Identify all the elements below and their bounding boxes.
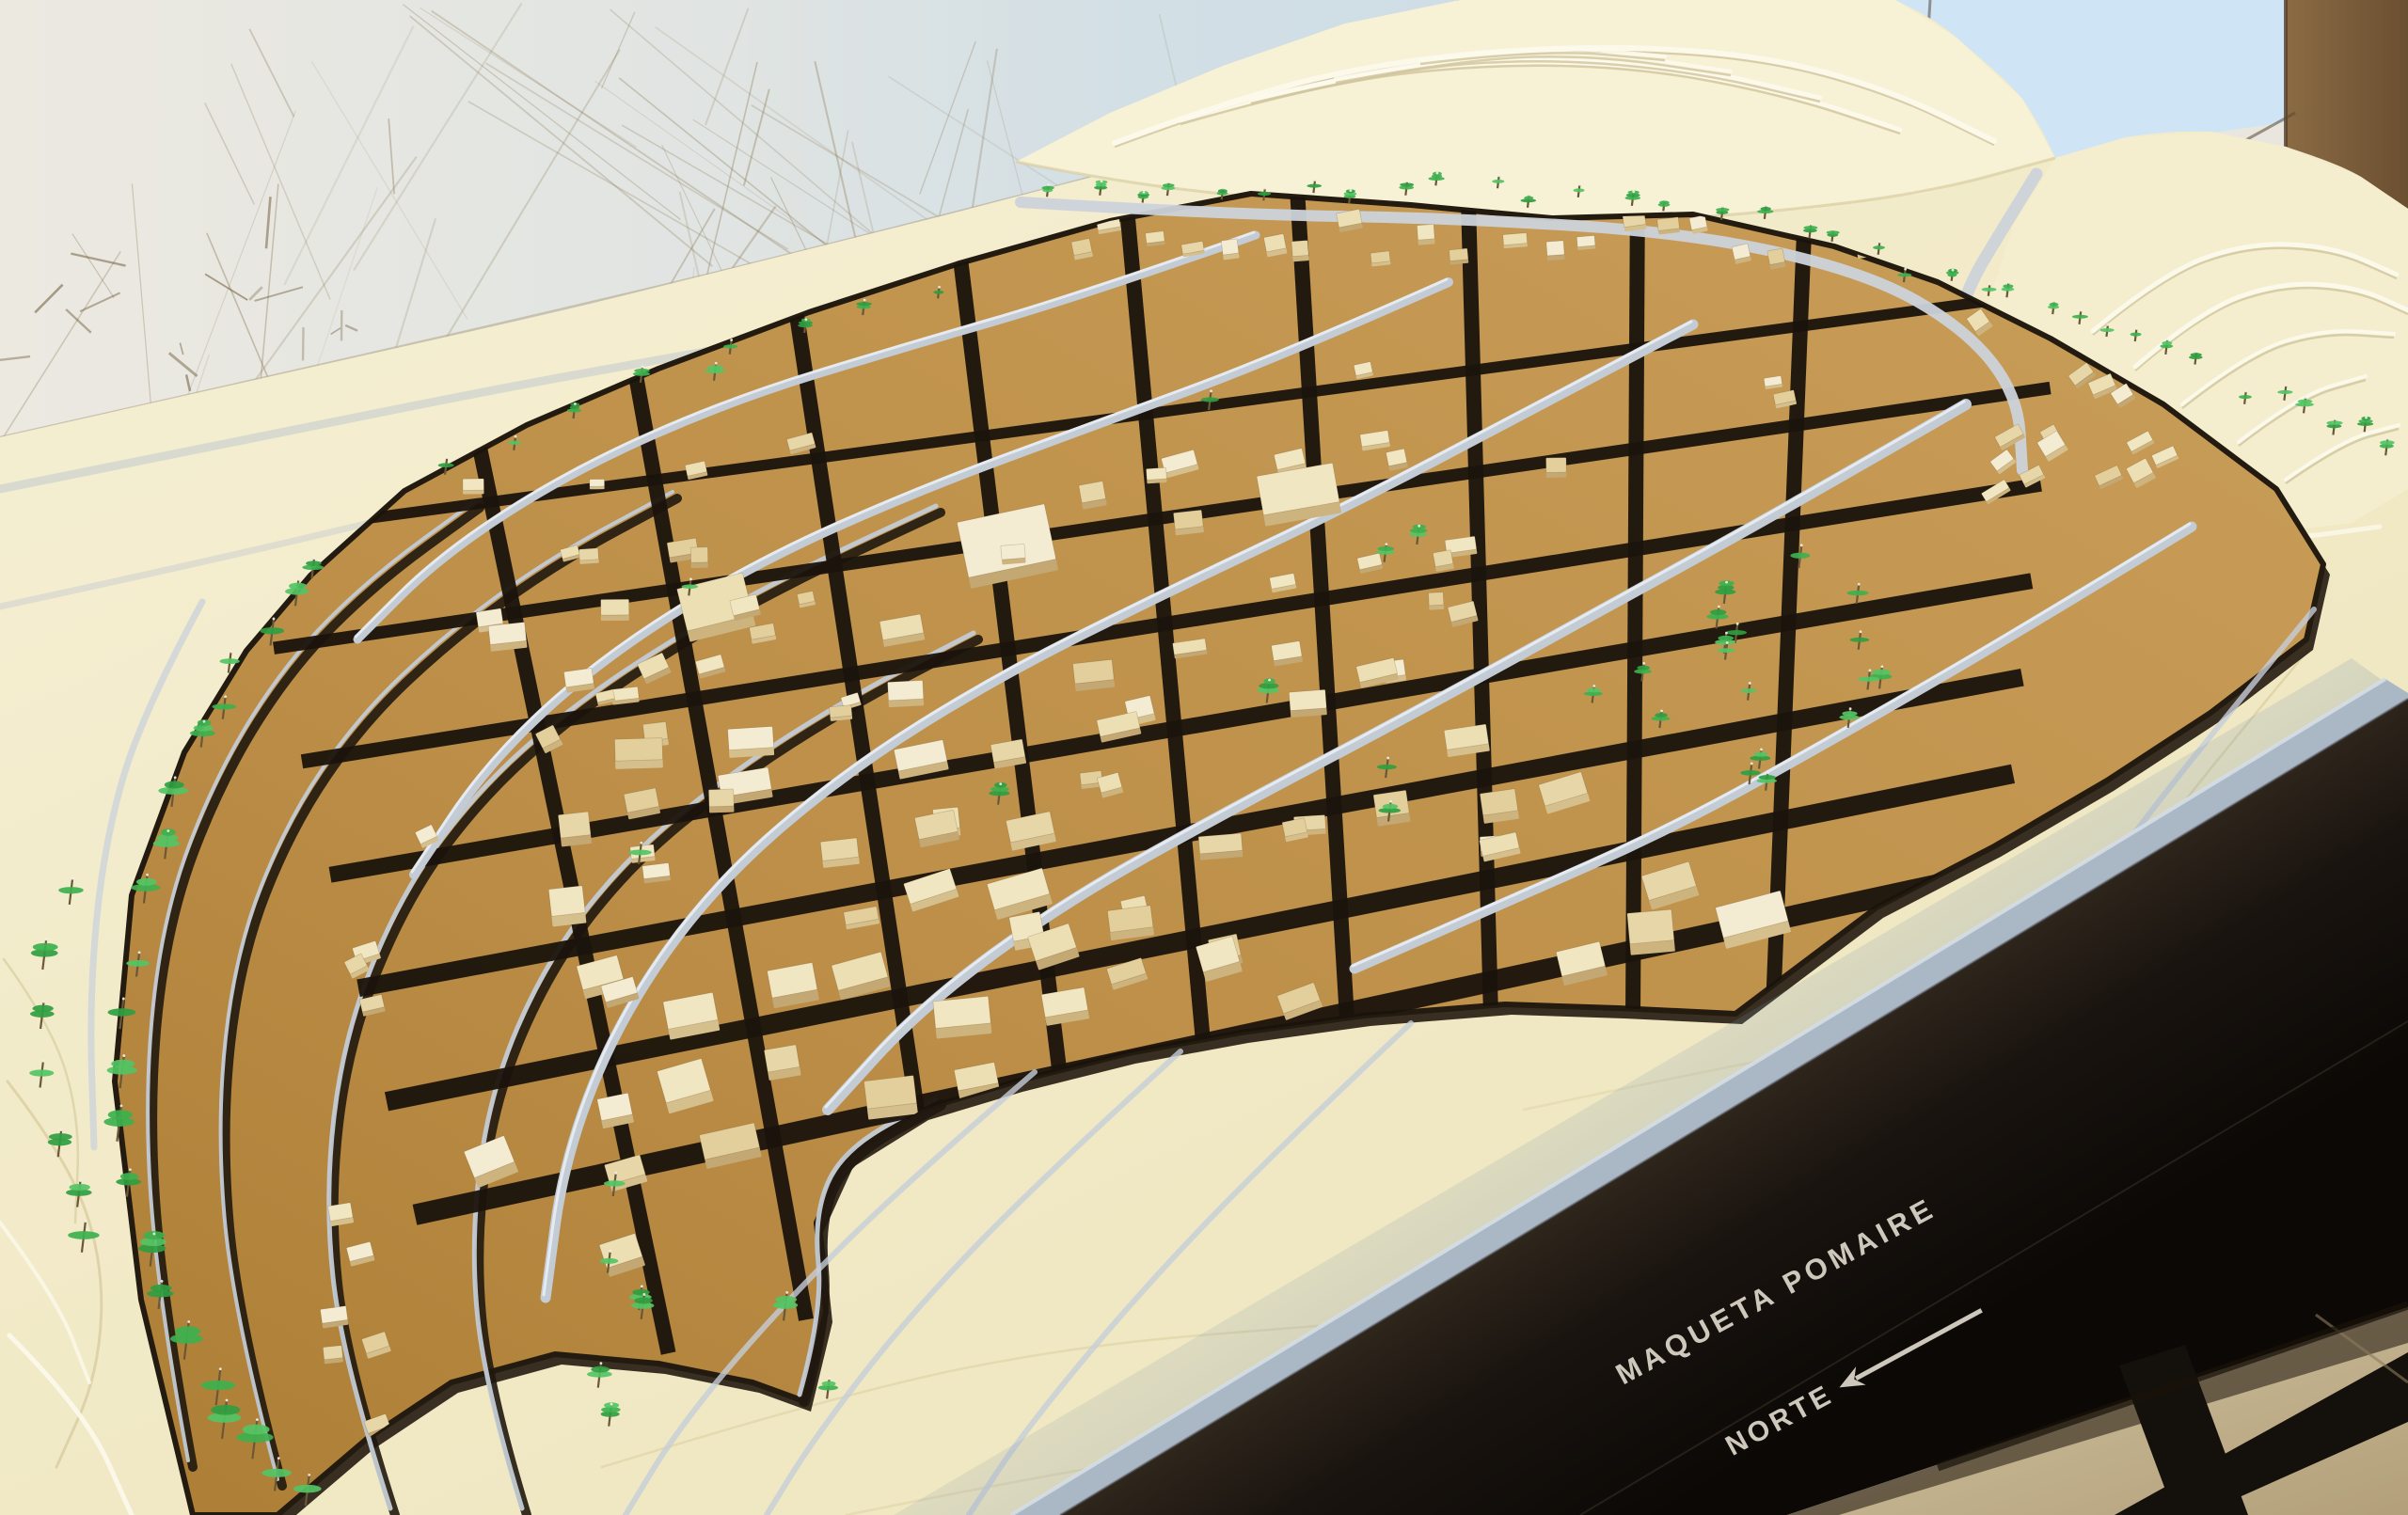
building-block — [1146, 467, 1166, 483]
building-block — [463, 479, 484, 495]
building-block — [888, 680, 925, 707]
building-block — [320, 1306, 348, 1329]
building-block — [690, 547, 708, 568]
building-block — [1198, 833, 1243, 860]
building-block — [1480, 789, 1519, 824]
building-block — [1433, 550, 1454, 572]
building-block — [642, 863, 671, 884]
building-block — [708, 789, 734, 813]
building-block — [563, 668, 594, 692]
building-block — [1657, 217, 1680, 235]
building-block — [1107, 906, 1154, 940]
building-block — [1146, 231, 1165, 247]
building-block — [558, 812, 592, 846]
building-block — [1689, 215, 1708, 234]
maqueta-pomaire-scale-model: MAQUETA POMAIRE NORTE — [0, 0, 2408, 1515]
building-block — [1576, 235, 1595, 249]
building-block — [1546, 458, 1567, 478]
building-block — [1001, 544, 1026, 564]
building-block — [614, 738, 662, 769]
building-block — [933, 996, 991, 1038]
building-block — [1071, 238, 1093, 260]
building-block — [1221, 239, 1239, 260]
building-block — [863, 1076, 918, 1120]
building-block — [1417, 224, 1434, 245]
building-block — [820, 838, 860, 868]
building-block — [601, 599, 629, 621]
building-block — [590, 479, 605, 489]
building-block — [548, 886, 586, 927]
building-block — [1627, 909, 1675, 955]
maqueta-photo: MAQUETA POMAIRE NORTE — [0, 0, 2408, 1515]
building-block — [1079, 481, 1107, 510]
building-block — [830, 705, 853, 721]
building-block — [1072, 659, 1115, 691]
building-block — [1370, 251, 1391, 267]
building-block — [1546, 241, 1565, 260]
building-block — [578, 548, 598, 564]
building-block — [728, 726, 775, 758]
building-block — [764, 1045, 800, 1081]
building-block — [1429, 592, 1445, 610]
building-block — [488, 623, 527, 652]
building-block — [1503, 233, 1528, 249]
building-block — [1173, 510, 1204, 535]
building-block — [1386, 449, 1408, 471]
building-block — [1289, 689, 1327, 718]
building-block — [323, 1346, 343, 1365]
building-block — [1291, 241, 1309, 262]
building-block — [1449, 248, 1468, 265]
building-block — [328, 1203, 355, 1226]
building-block — [611, 686, 640, 704]
building-block — [597, 1093, 634, 1128]
building-block — [1263, 233, 1287, 257]
